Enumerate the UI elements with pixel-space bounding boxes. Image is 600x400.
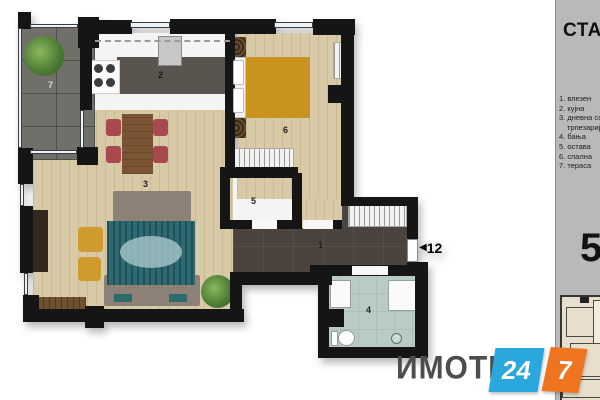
shower-head-icon: [391, 333, 402, 344]
wall-segment: [220, 167, 298, 178]
ottoman: [78, 257, 101, 281]
toilet: [331, 331, 338, 346]
window: [80, 110, 84, 148]
room-label-terrace: 7: [48, 80, 53, 90]
wall-segment: [23, 295, 39, 322]
window: [274, 22, 313, 28]
room-label-kitchen: 2: [158, 70, 163, 80]
wall-segment: [228, 220, 252, 229]
room-label-bedroom: 6: [283, 125, 288, 135]
wall-segment: [415, 262, 428, 358]
room-legend: 1. влезен 2. кујна 3. дневна со трпезари…: [559, 94, 600, 171]
window: [24, 273, 28, 295]
panel-title: СТАН: [563, 20, 600, 42]
dining-chair: [106, 119, 121, 136]
washing-machine: [330, 280, 351, 308]
wall-segment: [80, 45, 92, 110]
upper-cabinets-line: [95, 40, 230, 42]
room-label-hallway: 1: [318, 240, 323, 250]
dining-table: [122, 114, 153, 174]
door-opening: [352, 266, 388, 275]
sofa-cushion: [169, 294, 187, 302]
stove-burner-icon: [106, 64, 115, 73]
window: [30, 150, 77, 154]
door-opening: [252, 220, 277, 229]
wall-segment: [318, 265, 329, 358]
entrance-arrow-icon: ◀: [419, 241, 427, 255]
dining-chair: [106, 146, 121, 163]
logo-badge-7: 7: [542, 347, 588, 393]
entrance-number: 12: [427, 240, 443, 256]
info-panel: СТАН 1. влезен 2. кујна 3. дневна со трп…: [555, 0, 600, 400]
wall-segment: [313, 19, 355, 35]
wall-segment: [20, 206, 33, 273]
room-label-living: 3: [143, 179, 148, 189]
dining-chair: [153, 146, 168, 163]
rug-pattern: [120, 236, 182, 268]
sofa-cushion: [114, 294, 132, 302]
wall-segment: [25, 309, 244, 322]
legend-line: 4. бања: [559, 132, 600, 142]
room-label-storage: 5: [251, 196, 256, 206]
window: [30, 24, 78, 28]
wall-segment: [341, 19, 354, 205]
double-bed: [245, 57, 310, 118]
legend-line: 5. остава: [559, 142, 600, 152]
apartment-number: 5: [580, 226, 600, 271]
legend-line: 2. кујна: [559, 104, 600, 114]
room-label-bathroom: 4: [366, 305, 371, 315]
door-opening: [303, 220, 333, 229]
imoti247-logo: ИМОТИ 24 7: [396, 346, 596, 396]
entrance-door-leaf: [407, 239, 418, 262]
bed-pillow: [233, 60, 244, 85]
wall-segment: [333, 220, 342, 229]
tv-unit: [33, 210, 48, 272]
wall-segment: [170, 19, 276, 34]
window: [20, 184, 24, 206]
wall-segment: [277, 220, 293, 229]
wall-segment: [292, 173, 302, 229]
wall-segment: [77, 147, 98, 165]
stove-burner-icon: [106, 78, 115, 87]
window: [18, 28, 22, 148]
floor-plan: 1 2 3 4 5 6 7 ◀ 12: [0, 0, 460, 400]
bed-pillow: [233, 88, 244, 113]
legend-line: 1. влезен: [559, 94, 600, 104]
bedroom-dresser: [228, 148, 294, 168]
shower-cabin: [388, 280, 416, 311]
legend-line: 7. тераса: [559, 161, 600, 171]
screenshot: 1 2 3 4 5 6 7 ◀ 12 СТАН 1. влезен 2. куј…: [0, 0, 600, 400]
legend-line: 6. спална: [559, 152, 600, 162]
wall-segment: [407, 262, 418, 275]
window: [130, 22, 170, 28]
legend-line: трпезарија: [559, 123, 600, 133]
legend-line: 3. дневна со: [559, 113, 600, 123]
dining-chair: [153, 119, 168, 136]
stove-burner-icon: [94, 78, 103, 87]
hallway-wardrobe: [348, 204, 407, 227]
logo-badge-24: 24: [489, 348, 545, 392]
entrance-marker: ◀ 12: [419, 240, 442, 256]
wall-segment: [78, 17, 99, 48]
ottoman: [78, 227, 103, 252]
stove-burner-icon: [94, 64, 103, 73]
toilet: [338, 330, 355, 346]
terrace-plant: [24, 36, 64, 76]
